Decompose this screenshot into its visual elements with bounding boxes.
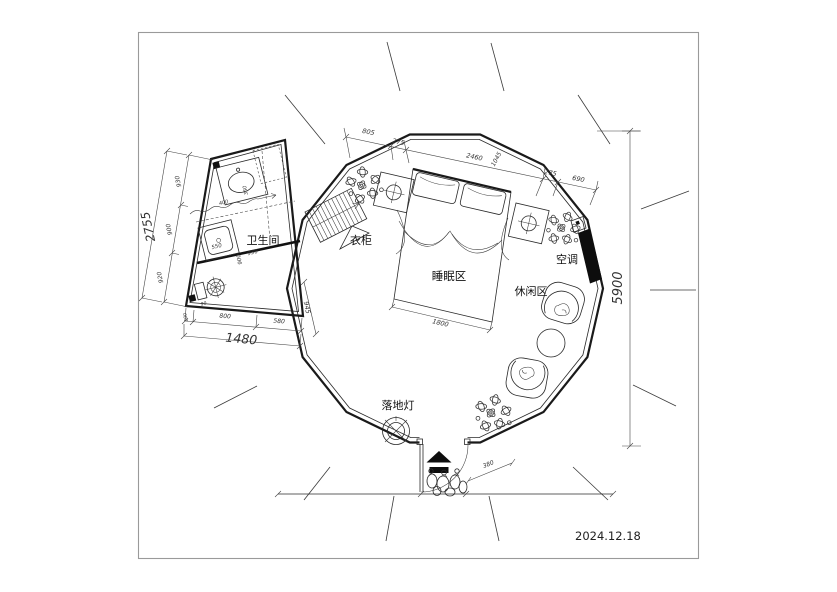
- label-wardrobe: 衣柜: [350, 233, 372, 247]
- label-leisure-area: 休闲区: [515, 284, 548, 298]
- label-floor-lamp: 落地灯: [382, 399, 415, 412]
- label-air-conditioner: 空调: [556, 252, 578, 266]
- dim-bath-bottom-total: 1480: [225, 330, 258, 348]
- dim-bath-bottom-580: 580: [273, 318, 285, 326]
- drawing-date: 2024.12.18: [575, 529, 641, 543]
- dim-bath-bottom-800: 800: [219, 313, 231, 321]
- floor-plan-drawing: 930 900 920 2755 100 800 580 1480 945 40…: [0, 0, 837, 592]
- floor-plan-page: 930 900 920 2755 100 800 580 1480 945 40…: [0, 0, 837, 592]
- label-sleeping-area: 睡眠区: [432, 269, 467, 283]
- dim-tent-height: 5900: [611, 271, 626, 304]
- label-bathroom: 卫生间: [247, 233, 280, 247]
